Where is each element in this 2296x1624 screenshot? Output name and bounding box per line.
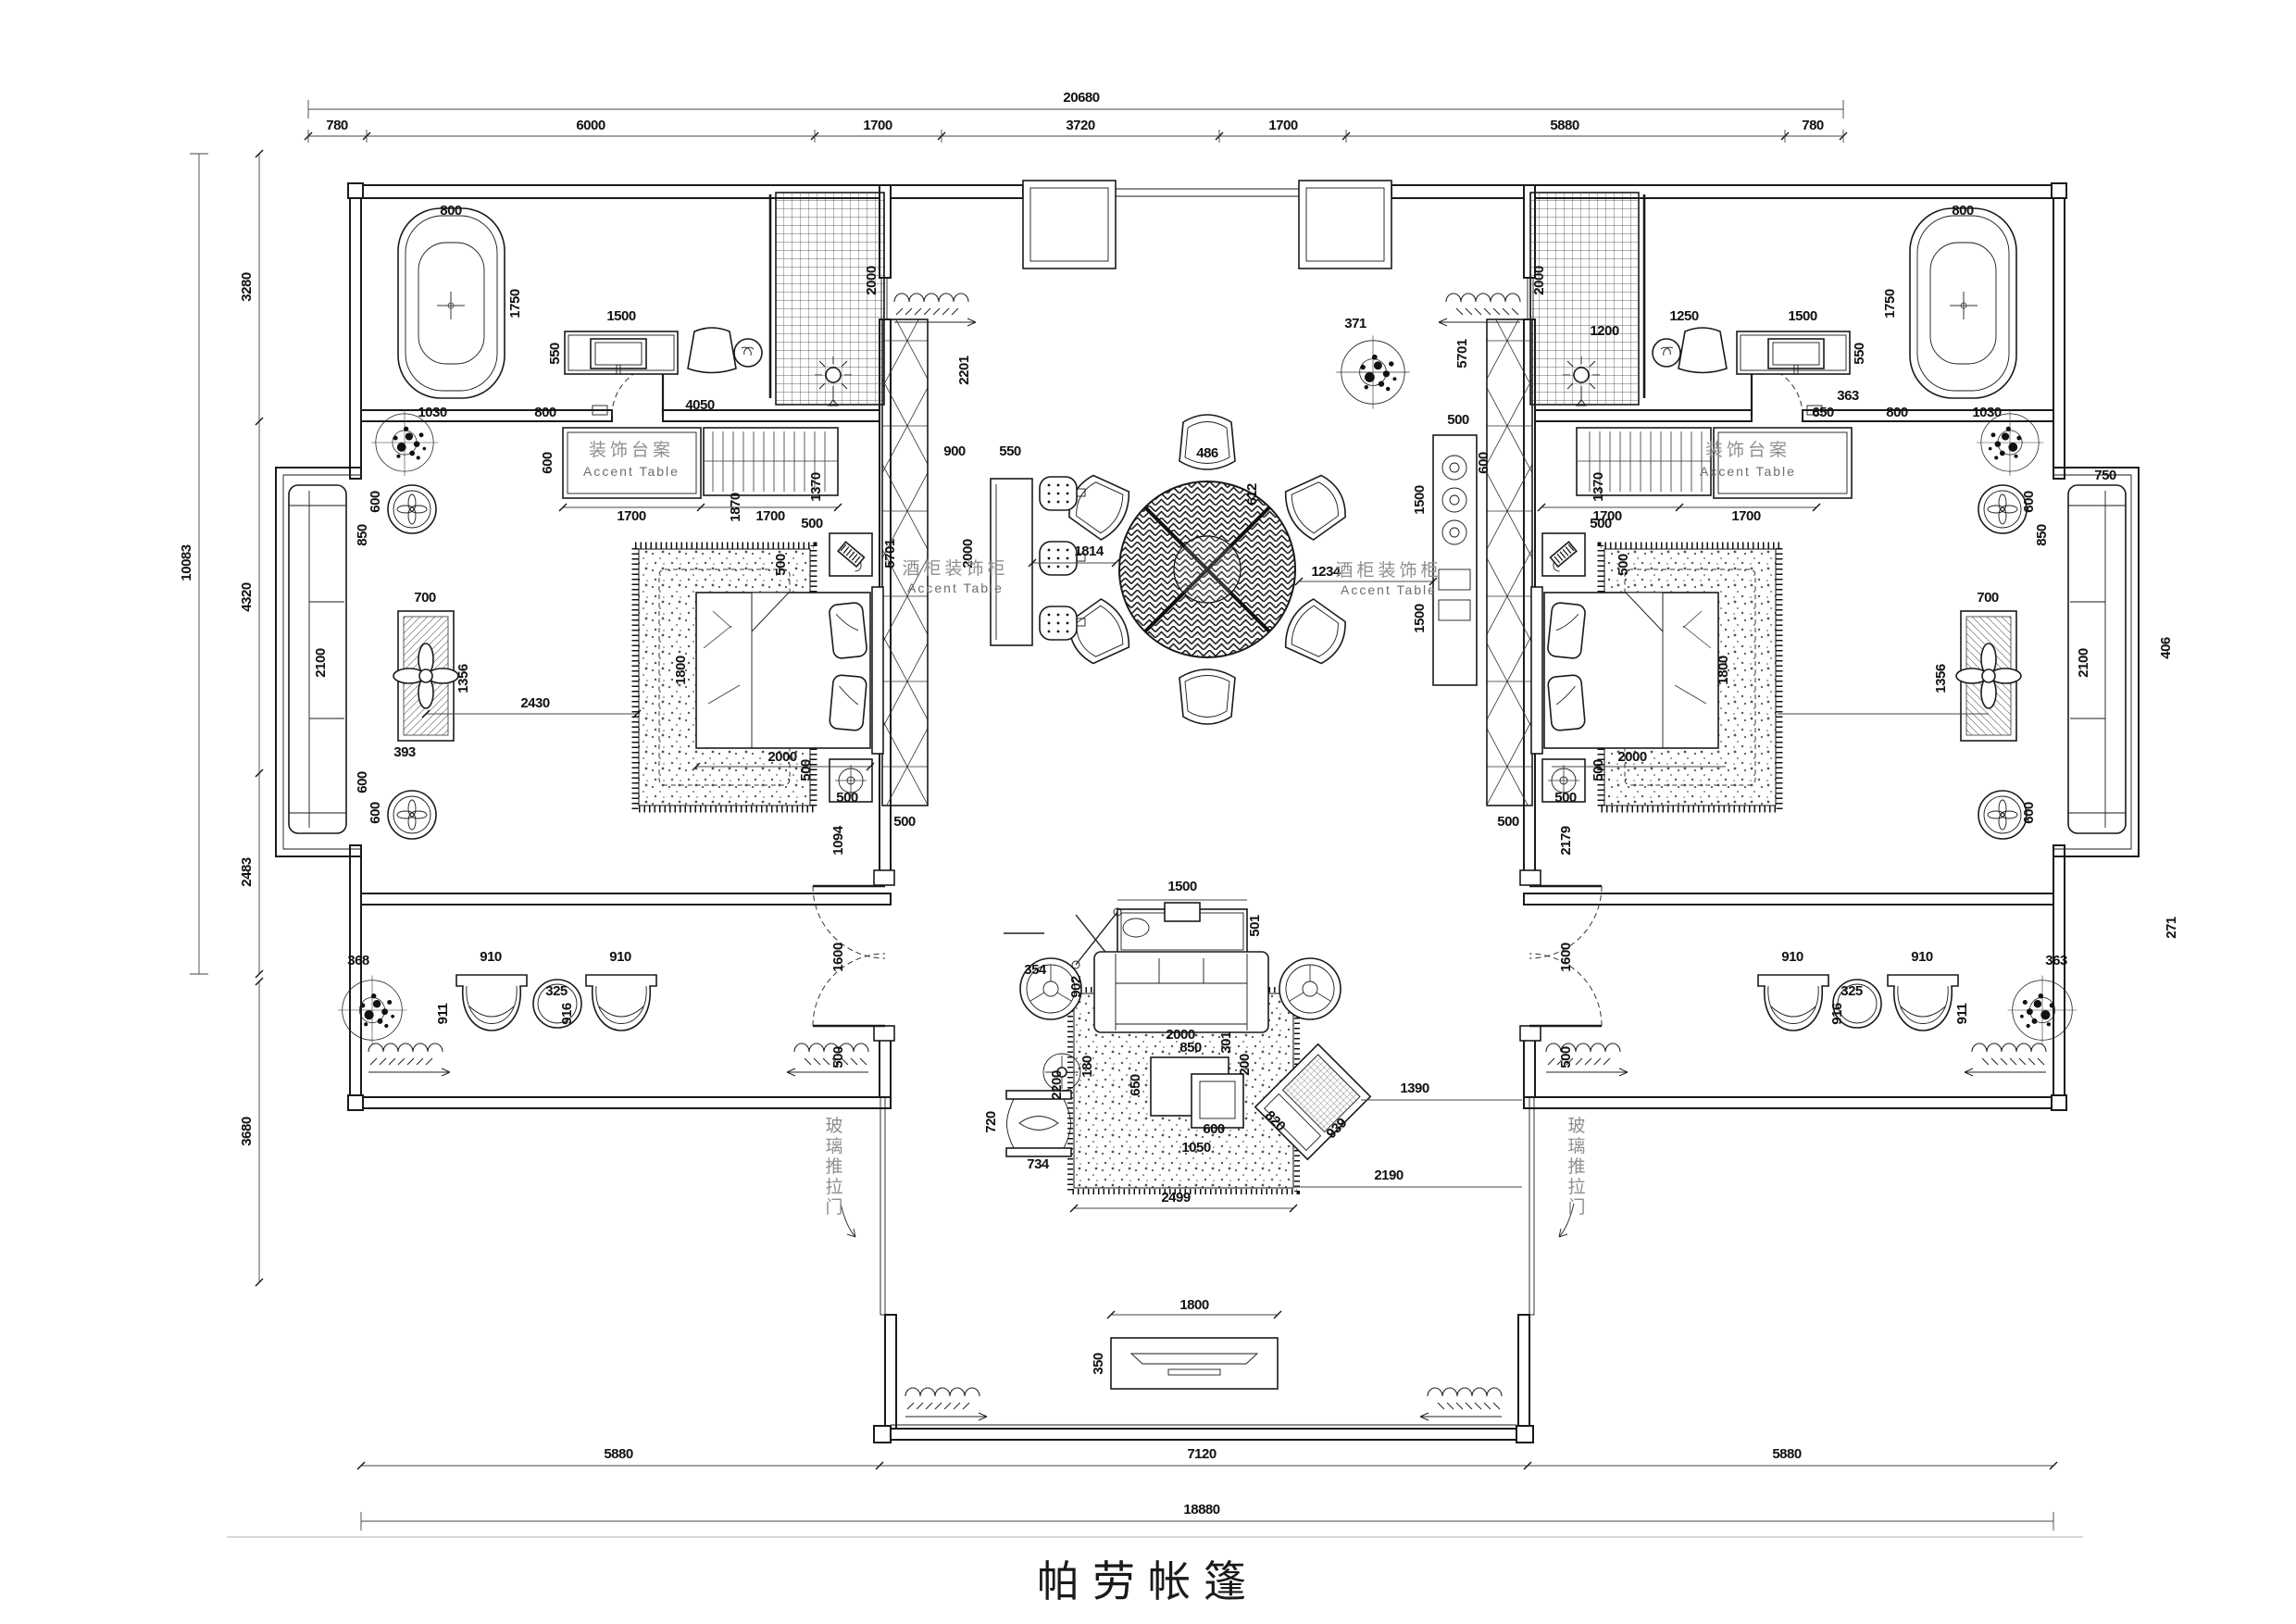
dimension-text: 406: [2158, 637, 2174, 659]
room-label: 装饰台案: [589, 440, 674, 460]
dimension-text: 800: [440, 203, 462, 219]
dimension-text: 486: [1196, 445, 1218, 461]
dimension-text: 2000: [767, 749, 797, 765]
dimension-text: 916: [559, 1003, 575, 1025]
dimension-text: 371: [1344, 316, 1366, 331]
room-label: 酒柜装饰柜: [902, 558, 1008, 579]
dimension-text: 1814: [1074, 543, 1104, 559]
floor-plan-page: 2068078060001700372017005880780100833280…: [0, 0, 2296, 1624]
dimension-text: 18880: [1183, 1502, 1219, 1518]
dimension-text: 1750: [1882, 289, 1898, 319]
dimension-text: 500: [836, 790, 858, 806]
dimension-text: 500: [801, 516, 823, 531]
dimension-text: 700: [414, 590, 436, 606]
dimension-text: 910: [480, 949, 502, 965]
dimension-text: 501: [1247, 915, 1263, 937]
dimension-text: 1500: [1167, 879, 1197, 894]
dimension-text: 5880: [604, 1446, 633, 1462]
dimension-text: 10083: [179, 544, 194, 581]
dimension-text: 1600: [830, 943, 846, 972]
dimension-text: 2000: [1531, 266, 1547, 295]
dimension-text: 500: [1447, 412, 1469, 428]
dimension-text: 3680: [239, 1117, 255, 1146]
dimension-text: 500: [1591, 759, 1606, 781]
dimension-text: 1800: [1716, 656, 1731, 685]
column-post: [874, 1426, 891, 1443]
kitchenette: [1433, 435, 1477, 685]
dimension-text: 3280: [239, 272, 255, 302]
dimension-text: 850: [1179, 1040, 1202, 1056]
dimension-text: 800: [534, 405, 556, 420]
dimension-text: 7120: [1187, 1446, 1217, 1462]
dimension-text: 780: [1802, 118, 1824, 133]
dimension-text: 2100: [313, 648, 329, 678]
dimension-text: 271: [2164, 917, 2179, 939]
dimension-text: 363: [1837, 388, 1859, 404]
dimension-text: 6000: [576, 118, 605, 133]
dimension-text: 1600: [1558, 943, 1574, 972]
dimension-text: 1094: [830, 825, 846, 856]
dimension-text: 1700: [755, 508, 785, 524]
dimension-text: 911: [435, 1003, 451, 1024]
dimension-text: 1030: [1972, 405, 2002, 420]
dimension-text: 5701: [1454, 339, 1470, 369]
dimension-text: 5701: [882, 539, 898, 568]
dimension-text: 500: [798, 759, 814, 781]
dimension-text: 1390: [1400, 1081, 1429, 1096]
dimension-text: 1700: [1268, 118, 1298, 133]
dimension-text: 600: [1476, 452, 1491, 474]
dimension-text: 550: [1852, 343, 1867, 365]
dimension-text: 600: [368, 491, 383, 513]
dimension-text: 550: [547, 343, 563, 365]
dimension-text: 910: [1781, 949, 1803, 965]
dimension-text: 500: [1497, 814, 1519, 830]
dimension-text: 850: [355, 524, 370, 546]
dimension-text: 3720: [1066, 118, 1095, 133]
dimension-text: 916: [1829, 1003, 1845, 1025]
dimension-text: 800: [1952, 203, 1974, 219]
dimension-text: 500: [893, 814, 916, 830]
dimension-text: 612: [1244, 483, 1260, 506]
living-sofa: [1094, 952, 1268, 1032]
dimension-text: 910: [1911, 949, 1933, 965]
dimension-text: 734: [1027, 1156, 1050, 1172]
dimension-text: 1050: [1181, 1140, 1211, 1156]
dimension-text: 4050: [685, 397, 715, 413]
dimension-text: 5880: [1550, 118, 1579, 133]
dimension-text: 20680: [1063, 90, 1099, 106]
dimension-text: 500: [1558, 1046, 1574, 1068]
dimension-text: 1870: [728, 493, 743, 522]
dimension-text: 2000: [1617, 749, 1647, 765]
dimension-text: 500: [830, 1046, 846, 1068]
dimension-text: 600: [368, 802, 383, 824]
floor-plan-canvas: 2068078060001700372017005880780100833280…: [0, 0, 2296, 1624]
dimension-text: 1700: [617, 508, 646, 524]
room-label: Accent Table: [583, 464, 680, 479]
dimension-text: 5880: [1772, 1446, 1802, 1462]
dimension-text: 2179: [1558, 826, 1574, 856]
dimension-text: 350: [1091, 1353, 1106, 1375]
room-label: Accent Table: [907, 581, 1004, 595]
dimension-text: 2200: [1049, 1070, 1065, 1100]
dimension-text: 902: [1068, 976, 1084, 998]
dimension-text: 700: [1977, 590, 1999, 606]
dimension-text: 2201: [956, 356, 972, 385]
dimension-text: 1356: [455, 664, 471, 693]
dimension-text: 1500: [606, 308, 636, 324]
dimension-text: 363: [2045, 953, 2067, 968]
dimension-text: 4320: [239, 582, 255, 612]
dimension-text: 780: [326, 118, 348, 133]
dimension-text: 1030: [418, 405, 447, 420]
dimension-text: 2430: [520, 695, 550, 711]
dimension-text: 600: [2021, 802, 2037, 824]
dimension-text: 550: [999, 443, 1021, 459]
dimension-text: 750: [2094, 468, 2116, 483]
dimension-text: 1500: [1788, 308, 1817, 324]
room-label: 玻璃推拉门: [825, 1116, 846, 1218]
dimension-text: 500: [773, 554, 789, 576]
dimension-text: 600: [355, 771, 370, 793]
dimension-text: 200: [1237, 1054, 1253, 1076]
dimension-text: 600: [2021, 491, 2037, 513]
dimension-text: 910: [609, 949, 631, 965]
dimension-text: 1200: [1590, 323, 1619, 339]
dimension-text: 2190: [1374, 1168, 1404, 1183]
dimension-text: 800: [1886, 405, 1908, 420]
dimension-text: 325: [1841, 983, 1863, 999]
wall: [880, 1429, 1528, 1440]
dimension-text: 1370: [808, 472, 824, 502]
sofa-console: [1117, 903, 1247, 954]
dimension-text: 2483: [239, 857, 255, 887]
dimension-text: 325: [545, 983, 568, 999]
dimension-text: 850: [2034, 524, 2050, 546]
dining-table: [1119, 481, 1295, 657]
dimension-text: 368: [347, 953, 369, 968]
dimension-text: 900: [943, 443, 966, 459]
column-post: [1516, 1426, 1533, 1443]
dimension-text: 650: [1128, 1074, 1143, 1096]
dimension-text: 1356: [1933, 664, 1949, 693]
dimension-text: 1250: [1669, 308, 1699, 324]
dimension-text: 500: [1554, 790, 1577, 806]
room-label: 装饰台案: [1705, 440, 1791, 460]
dimension-text: 2100: [2076, 648, 2091, 678]
room-label: 酒柜装饰柜: [1335, 560, 1441, 581]
dimension-text: 600: [540, 452, 555, 474]
dimension-text: 1700: [1731, 508, 1761, 524]
dimension-text: 2499: [1161, 1190, 1191, 1206]
dimension-text: 1800: [673, 656, 689, 685]
dimension-text: 354: [1024, 962, 1047, 978]
dimension-text: 1370: [1591, 472, 1606, 502]
dimension-text: 720: [983, 1111, 999, 1133]
dimension-text: 393: [393, 744, 416, 760]
dimension-text: 500: [1616, 554, 1631, 576]
dimension-text: 650: [1812, 405, 1834, 420]
drawing-title: 帕劳帐篷: [1037, 1558, 1259, 1605]
dimension-text: 2000: [864, 266, 880, 295]
dimension-text: 301: [1218, 1031, 1234, 1054]
room-label: 玻璃推拉门: [1567, 1116, 1589, 1218]
dimension-text: 180: [1079, 1056, 1095, 1078]
dimension-text: 911: [1954, 1003, 1970, 1024]
dimension-text: 1800: [1179, 1297, 1209, 1313]
dimension-text: 500: [1590, 516, 1612, 531]
dimension-text: 1500: [1412, 604, 1428, 633]
room-label: Accent Table: [1341, 582, 1437, 597]
dimension-text: 1750: [507, 289, 523, 319]
dimension-text: 1700: [863, 118, 892, 133]
dimension-text: 1500: [1412, 485, 1428, 515]
room-label: Accent Table: [1700, 464, 1796, 479]
tv-cabinet: [1111, 1338, 1278, 1389]
dimension-text: 600: [1203, 1121, 1225, 1137]
